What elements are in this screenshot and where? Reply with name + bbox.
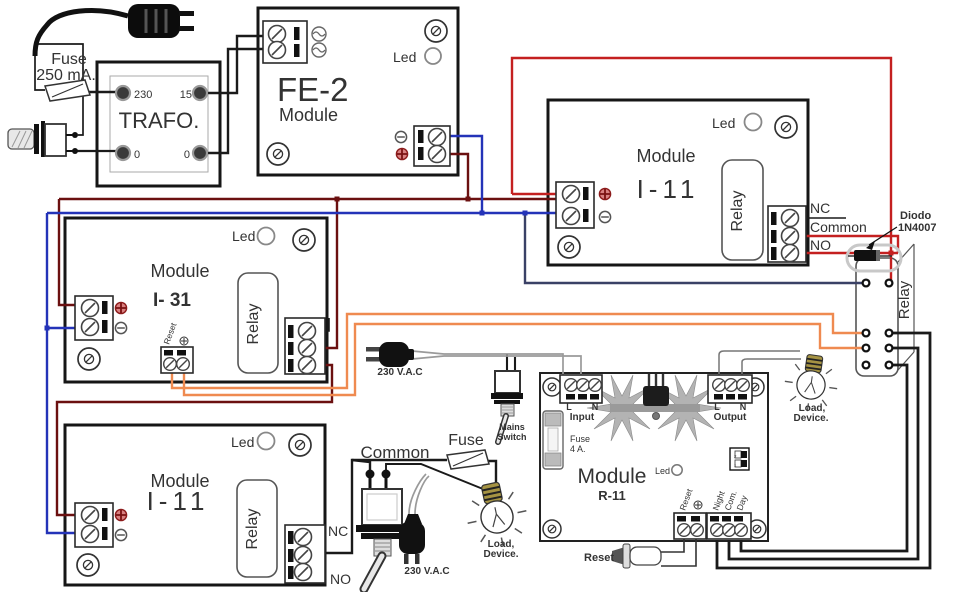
diagram-canvas: Fuse 250 mA. TRAFO. 230 15 0 0 FE-2 Modu… (0, 0, 966, 592)
r11-led-label: Led (655, 466, 670, 476)
wires-reset-button (661, 538, 696, 566)
i31-led-icon (258, 228, 275, 245)
i11top-led-icon (745, 114, 762, 131)
r11-ncd-terminal (707, 513, 751, 539)
i11top-nc-label: NC (810, 200, 830, 216)
fe2-model: FE-2 (277, 71, 349, 108)
trafo-0r: 0 (184, 149, 190, 161)
r11-fuse (543, 411, 563, 469)
r11-input-label: Input (570, 412, 595, 423)
power-switch (8, 121, 78, 157)
i31-led-label: Led (232, 228, 255, 244)
i11bot-led-icon (258, 433, 275, 450)
trafo-230: 230 (134, 89, 152, 101)
plug-230vac-mains (366, 342, 414, 367)
fe2-led-icon (425, 48, 441, 64)
mains-switch-label-2: Switch (497, 432, 526, 442)
fe2-led-label: Led (393, 49, 416, 65)
i31-model: I- 31 (153, 290, 191, 311)
cord-line-1 (412, 351, 563, 375)
plus-terminal-icon (115, 302, 126, 313)
earth-symbol-icon (180, 337, 188, 345)
i11top-output-terminal (768, 206, 806, 262)
mount-hole (289, 434, 311, 456)
r11-input-terminal (560, 375, 602, 403)
mount-hole (267, 143, 289, 165)
trafo-15: 15 (180, 89, 192, 101)
i11top-model: I-11 (637, 174, 700, 204)
minus-terminal-icon (395, 131, 406, 142)
fuse250-label-1: Fuse (51, 51, 87, 68)
load1-label-2: Device. (483, 549, 518, 560)
r11-title: Module (578, 465, 647, 488)
common-label: Common (361, 443, 430, 462)
mount-hole (293, 229, 315, 251)
r11-fuse-label-1: Fuse (570, 434, 590, 444)
fe2-title: Module (279, 105, 338, 125)
minus-terminal-icon (115, 529, 126, 540)
mount-hole (543, 378, 561, 396)
i11top-title: Module (636, 146, 695, 166)
wires-output-lamp (719, 351, 801, 375)
i11top-common-label: Common (810, 219, 867, 235)
cord-plug-a (409, 474, 426, 514)
r11-input-n: N (592, 402, 599, 412)
mount-hole (425, 20, 447, 42)
mount-hole (558, 236, 580, 258)
mount-hole (543, 520, 561, 538)
fuse-symbol (447, 450, 489, 469)
i31-output-terminal (285, 318, 325, 374)
dip-switch (730, 448, 749, 470)
mains-switch-label-1: Mains (499, 422, 525, 432)
wiring-diagram: Fuse 250 mA. TRAFO. 230 15 0 0 FE-2 Modu… (0, 0, 966, 592)
trafo-0l: 0 (134, 149, 140, 161)
wire-output-l-lamp (719, 351, 800, 375)
r11-input-l: L (566, 402, 572, 412)
i31-relay-label: Relay (245, 304, 262, 345)
plus-terminal-icon (115, 509, 126, 520)
plus-terminal-icon (396, 148, 407, 159)
trafo-title: TRAFO. (119, 108, 200, 133)
reset-button-label: Reset (584, 552, 614, 564)
vac-mains-label: 230 V.A.C (377, 367, 422, 378)
i11top-relay-label: Relay (729, 191, 746, 232)
r11-output-terminal (708, 375, 752, 403)
i11bot-no-label: NO (330, 571, 351, 587)
mains-plug-top (35, 4, 194, 56)
diode-label-1: Diodo (900, 210, 931, 222)
i11bot-led-label: Led (231, 434, 254, 450)
ext-relay-label: Relay (896, 280, 913, 319)
fuse-label: Fuse (448, 432, 484, 449)
vac-bottom-label: 230 V.A.C (404, 566, 449, 577)
r11-output-l: L (714, 402, 720, 412)
minus-terminal-icon (599, 211, 610, 222)
wire-toggle-right-lamp (386, 464, 483, 489)
i11top-led-label: Led (712, 115, 735, 131)
i11bot-output-terminal (285, 525, 325, 583)
cord-plug-b (415, 476, 429, 514)
minus-terminal-icon (115, 322, 126, 333)
r11-output-label: Output (714, 412, 747, 423)
mount-hole (77, 554, 99, 576)
mount-hole (775, 116, 797, 138)
fuse250-label-2: 250 mA. (36, 67, 96, 84)
i11bot-nc-label: NC (328, 523, 348, 539)
i31-title: Module (150, 261, 209, 281)
plus-terminal-icon (599, 188, 610, 199)
i11bot-relay-label: Relay (244, 509, 261, 550)
r11-output-n: N (740, 402, 747, 412)
mount-hole (78, 348, 100, 370)
diode-label-2: 1N4007 (898, 222, 937, 234)
r11-model: R-11 (598, 488, 625, 503)
r11-fuse-label-2: 4 A. (570, 444, 586, 454)
reset-push-button (612, 544, 661, 568)
load2-label-2: Device. (793, 413, 828, 424)
i11top-no-label: NO (810, 237, 831, 253)
r11-led-icon (672, 465, 682, 475)
i11bot-model: I-11 (147, 486, 210, 516)
earth-symbol-icon (694, 501, 702, 509)
